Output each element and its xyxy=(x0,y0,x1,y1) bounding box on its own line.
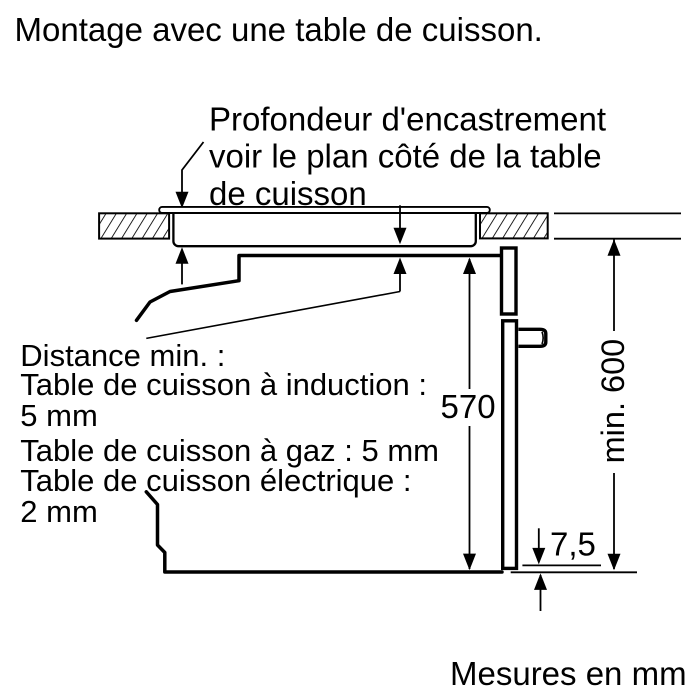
svg-text:570: 570 xyxy=(441,388,496,425)
svg-text:Montage avec une table de cuis: Montage avec une table de cuisson. xyxy=(15,11,543,48)
svg-text:Profondeur d'encastrement: Profondeur d'encastrement xyxy=(209,101,606,138)
svg-text:2 mm: 2 mm xyxy=(20,494,98,529)
svg-text:min. 600: min. 600 xyxy=(595,339,631,464)
svg-text:Table de cuisson électrique :: Table de cuisson électrique : xyxy=(20,463,411,498)
svg-text:Table de cuisson à induction :: Table de cuisson à induction : xyxy=(20,367,427,402)
svg-text:7,5: 7,5 xyxy=(550,526,596,563)
svg-text:voir le plan côté de la table: voir le plan côté de la table xyxy=(209,138,602,175)
svg-text:5 mm: 5 mm xyxy=(20,398,98,433)
svg-text:Mesures en mm: Mesures en mm xyxy=(450,655,687,692)
